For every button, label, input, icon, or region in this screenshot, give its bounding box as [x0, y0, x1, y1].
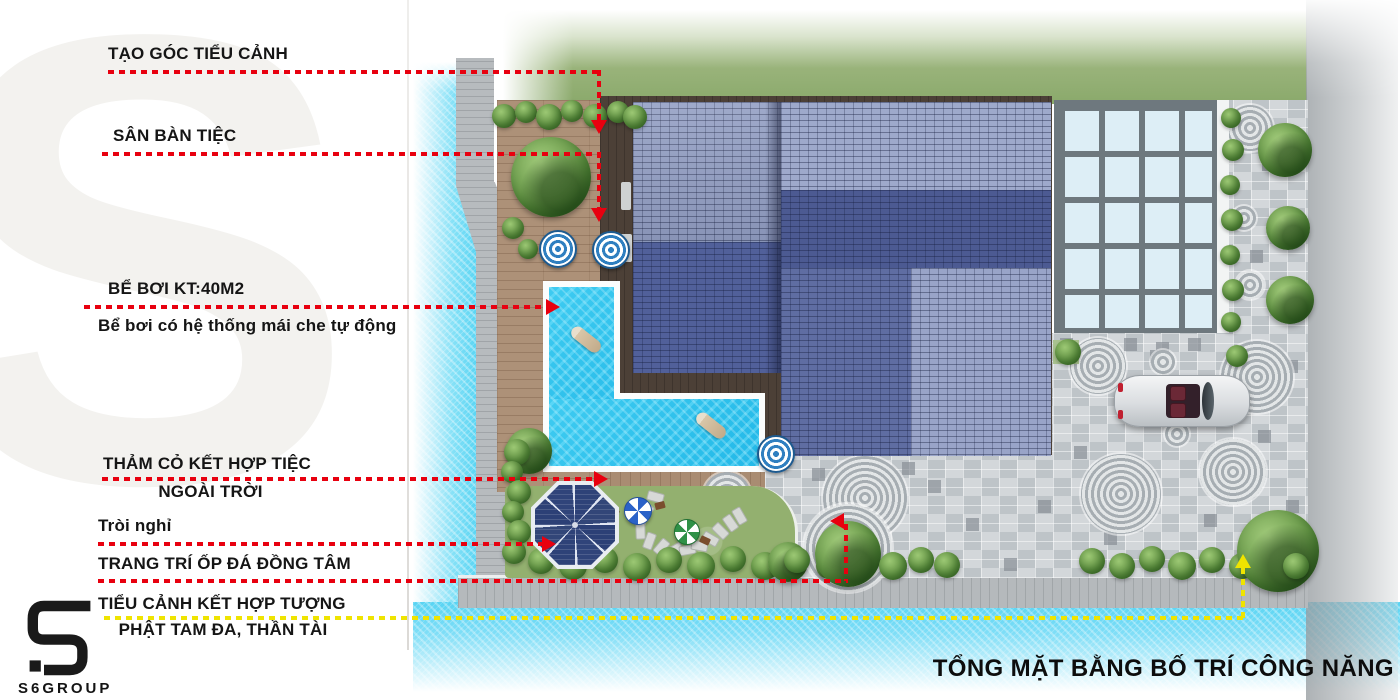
s6group-logo — [20, 596, 100, 680]
bush — [1222, 139, 1244, 161]
tree — [1237, 510, 1319, 592]
roof-ridge-shadow — [765, 102, 781, 373]
bush — [518, 239, 538, 259]
pool-parasol — [592, 231, 630, 269]
bush — [1221, 312, 1241, 332]
slide: S — [0, 0, 1400, 700]
annotation-label: TIỂU CẢNH KẾT HỢP TƯỢNG — [98, 594, 346, 614]
roof-panel — [633, 102, 781, 242]
pool-parasol — [757, 435, 795, 473]
bush — [720, 546, 746, 572]
tree — [1266, 206, 1310, 250]
annotation-label: TRANG TRÍ ỐP ĐÁ ĐỒNG TÂM — [98, 554, 351, 574]
bush — [515, 101, 537, 123]
paving-dark-tile — [966, 518, 979, 531]
annotation-arrow — [591, 208, 607, 222]
paving-dark-tile — [1258, 430, 1271, 443]
bush — [1220, 245, 1240, 265]
annotation-label: TẠO GÓC TIỂU CẢNH — [108, 44, 288, 64]
paving-dark-tile — [1038, 500, 1051, 513]
paving-dark-tile — [1188, 338, 1201, 351]
grass-border — [503, 10, 1307, 104]
annotation-line — [102, 152, 601, 156]
paving-dark-tile — [1004, 558, 1017, 571]
paving-dark-tile — [1124, 338, 1137, 351]
bush — [934, 552, 960, 578]
annotation-line — [102, 477, 594, 481]
car-taillight — [1118, 383, 1123, 392]
paving-dark-tile — [1250, 250, 1263, 263]
annotation-arrow-yellow — [1235, 554, 1251, 568]
grass-fade — [503, 10, 573, 104]
bush — [492, 104, 516, 128]
paving-dark-tile — [812, 468, 825, 481]
paving-dark-tile — [1074, 446, 1087, 459]
annotation-arrow — [594, 471, 608, 487]
annotation-line — [844, 524, 848, 581]
deck-bench — [621, 182, 631, 210]
annotation-sublabel: Bể bơi có hệ thống mái che tự động — [98, 316, 396, 336]
pool-parasol — [539, 230, 577, 268]
bush — [1139, 546, 1165, 572]
car-seat — [1170, 386, 1186, 401]
s6-logo-mark — [20, 596, 100, 680]
lawn-parasol-green — [674, 519, 700, 545]
annotation-line — [108, 70, 601, 74]
annotation-arrow — [830, 513, 844, 529]
pool — [549, 399, 759, 466]
bush — [623, 105, 647, 129]
bush — [1222, 279, 1244, 301]
car-taillight — [1118, 410, 1123, 419]
annotation-arrow — [591, 120, 607, 134]
tree — [815, 521, 881, 587]
bush — [1221, 209, 1243, 231]
road-shadow-band — [1306, 0, 1398, 700]
paving-dark-tile — [902, 462, 915, 475]
bush — [1221, 108, 1241, 128]
annotation-line — [597, 70, 601, 120]
annotation-line — [84, 305, 546, 309]
annotation-label: SÂN BÀN TIỆC — [113, 126, 236, 146]
paving-dark-tile — [1204, 514, 1217, 527]
bush — [623, 553, 651, 581]
bush — [536, 104, 562, 130]
bush — [1079, 548, 1105, 574]
annotation-line — [98, 579, 848, 583]
bush — [1220, 175, 1240, 195]
car — [1112, 372, 1252, 430]
stone-ring-motif — [1200, 439, 1266, 505]
annotation-label: THẢM CỎ KẾT HỢP TIỆC — [103, 454, 311, 474]
s6group-logo-text: S6GROUP — [18, 680, 112, 697]
lawn-parasol-blue — [624, 497, 652, 525]
bush — [1109, 553, 1135, 579]
annotation-label: NGOÀI TRỜI — [103, 482, 318, 502]
tree — [1266, 276, 1314, 324]
roof-panel — [781, 190, 1051, 268]
drawing-title: TỔNG MẶT BẰNG BỐ TRÍ CÔNG NĂNG — [933, 655, 1394, 683]
bush — [879, 552, 907, 580]
annotation-line-yellow — [1241, 568, 1245, 618]
stone-ring-motif — [1151, 350, 1175, 374]
paving-dark-tile — [928, 480, 941, 493]
tree — [1258, 123, 1312, 177]
annotation-arrow — [546, 299, 560, 315]
annotation-arrow — [542, 536, 556, 552]
stone-ring-motif — [1081, 454, 1161, 534]
roof-panel — [633, 242, 781, 373]
paving-dark-tile — [1104, 532, 1117, 545]
bush — [908, 547, 934, 573]
bush — [1168, 552, 1196, 580]
roof-panel — [781, 268, 911, 456]
car-windshield — [1202, 382, 1214, 420]
bush — [561, 100, 583, 122]
bush — [784, 547, 810, 573]
glass-skylight-grid — [1054, 100, 1217, 333]
gazebo-parasol — [535, 485, 615, 565]
bush — [656, 547, 682, 573]
annotation-line — [98, 542, 542, 546]
annotation-line — [597, 152, 601, 210]
car-seat — [1170, 403, 1186, 418]
bush — [1199, 547, 1225, 573]
bush — [1226, 345, 1248, 367]
annotation-label: Tròi nghỉ — [98, 516, 172, 536]
bush — [502, 217, 524, 239]
roof-panel — [781, 102, 1051, 190]
roof-panel — [911, 268, 1051, 456]
bush — [1055, 339, 1081, 365]
tree — [511, 137, 591, 217]
panel-divider — [407, 0, 409, 650]
bush — [687, 552, 715, 580]
annotation-label: PHẬT TAM ĐA, THẦN TÀI — [98, 620, 348, 640]
annotation-label: BỂ BƠI KT:40M2 — [108, 279, 244, 299]
bush — [1283, 553, 1309, 579]
